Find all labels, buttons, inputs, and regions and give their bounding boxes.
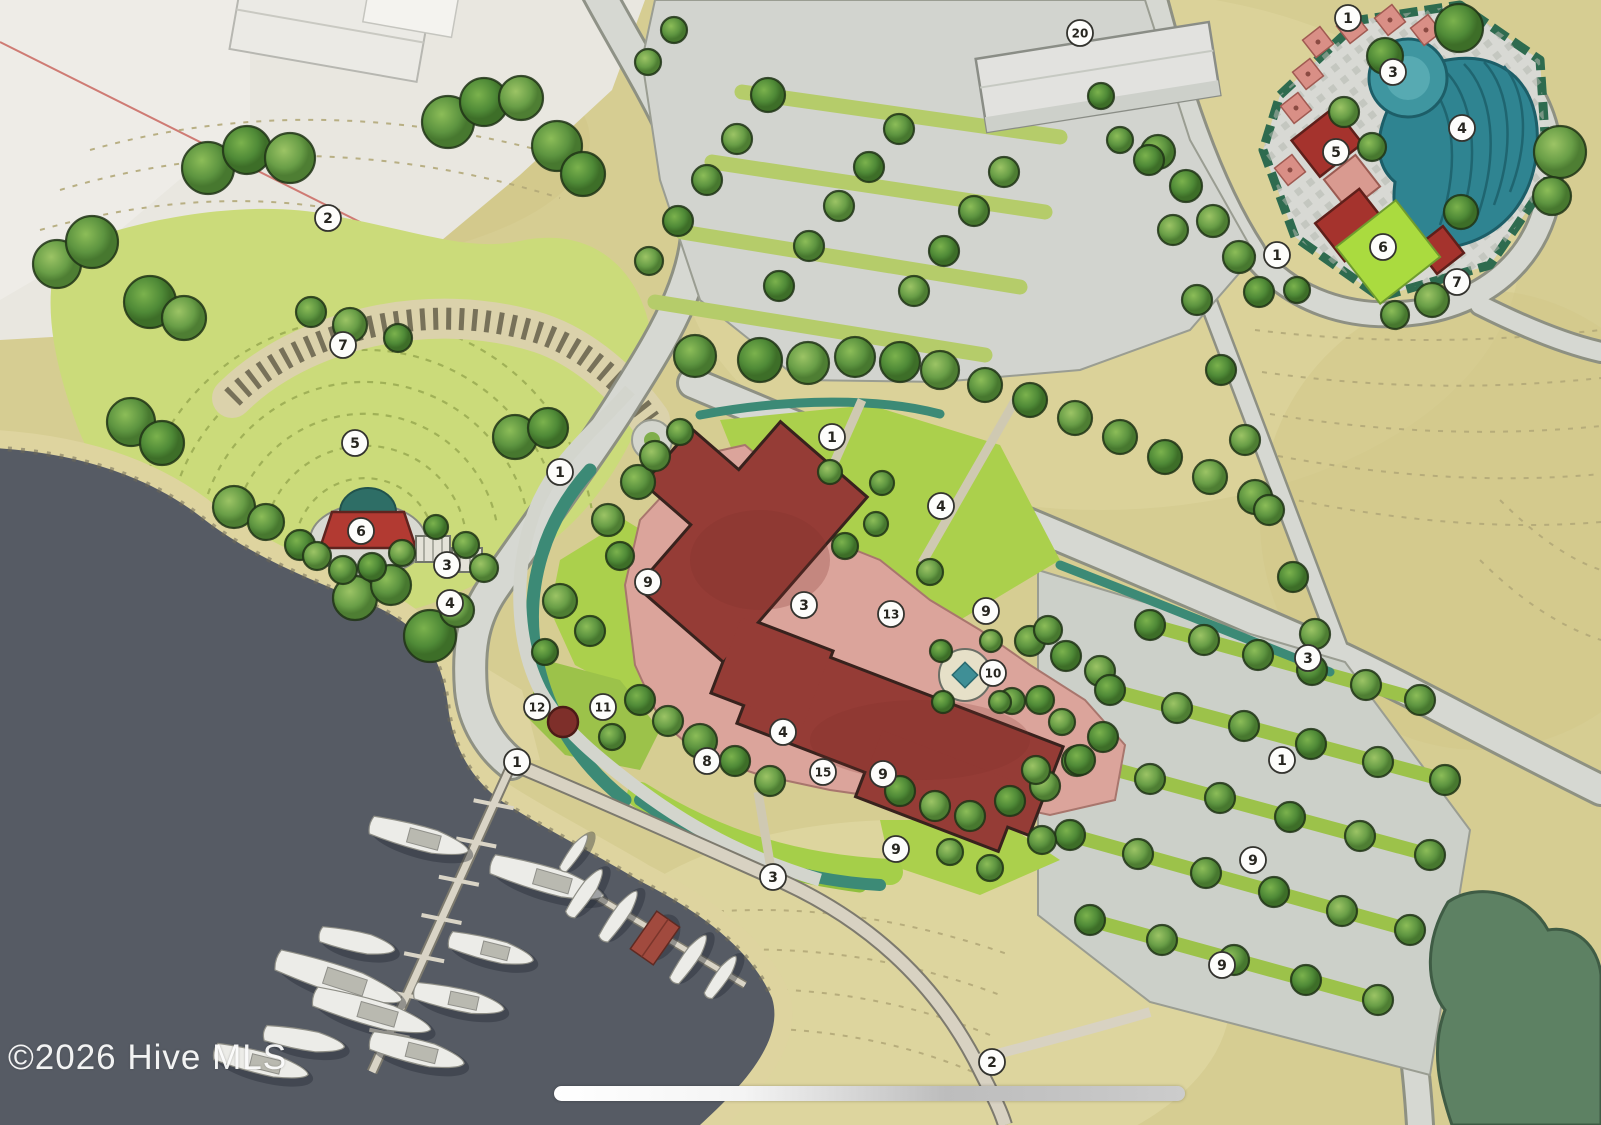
tree (561, 152, 605, 196)
tree (1103, 420, 1137, 454)
key-marker: 7 (330, 332, 356, 358)
tree (528, 408, 568, 448)
tree (599, 724, 625, 750)
tree (1329, 97, 1359, 127)
tree (1095, 675, 1125, 705)
tree (870, 471, 894, 495)
tree (722, 124, 752, 154)
tree (738, 338, 782, 382)
key-marker: 8 (694, 748, 720, 774)
svg-text:9: 9 (981, 604, 991, 620)
key-marker: 4 (770, 719, 796, 745)
key-marker: 1 (1335, 5, 1361, 31)
svg-text:13: 13 (883, 607, 900, 621)
tree (1358, 133, 1386, 161)
tree (955, 801, 985, 831)
tree (1065, 745, 1095, 775)
tree (1197, 205, 1229, 237)
svg-text:9: 9 (891, 842, 901, 858)
tree (1243, 640, 1273, 670)
svg-text:9: 9 (1248, 853, 1258, 869)
svg-text:5: 5 (1331, 145, 1341, 161)
key-marker: 9 (635, 569, 661, 595)
tree (854, 152, 884, 182)
key-marker: 9 (973, 598, 999, 624)
svg-text:1: 1 (1272, 248, 1282, 264)
tree (794, 231, 824, 261)
site-plan-drawing: 2756341201493139101211481599311345671319… (0, 0, 1601, 1125)
tree (1162, 693, 1192, 723)
tree (1284, 277, 1310, 303)
key-marker: 1 (1264, 242, 1290, 268)
tree (1205, 783, 1235, 813)
tree (1300, 619, 1330, 649)
key-marker: 5 (1323, 139, 1349, 165)
key-marker: 9 (1209, 952, 1235, 978)
tree (989, 691, 1011, 713)
tree (1381, 301, 1409, 329)
svg-text:2: 2 (987, 1055, 997, 1071)
tree (140, 421, 184, 465)
tree (1191, 858, 1221, 888)
tree (1351, 670, 1381, 700)
tree (1148, 440, 1182, 474)
tree (917, 559, 943, 585)
svg-text:20: 20 (1072, 26, 1089, 40)
tree (635, 49, 661, 75)
key-marker: 5 (342, 430, 368, 456)
key-marker: 4 (928, 493, 954, 519)
tree (921, 351, 959, 389)
tree (1170, 170, 1202, 202)
tree (1026, 686, 1054, 714)
tree (1182, 285, 1212, 315)
svg-text:7: 7 (338, 338, 348, 354)
tree (1444, 195, 1478, 229)
tree (1034, 616, 1062, 644)
key-marker: 3 (791, 592, 817, 618)
key-marker: 3 (760, 864, 786, 890)
tree (989, 157, 1019, 187)
tree (932, 691, 954, 713)
tree (606, 542, 634, 570)
tree (968, 368, 1002, 402)
tree (977, 855, 1003, 881)
tree (1395, 915, 1425, 945)
svg-text:4: 4 (778, 725, 788, 741)
site-plan-page: 2756341201493139101211481599311345671319… (0, 0, 1601, 1125)
tree (1363, 747, 1393, 777)
tree (1254, 495, 1284, 525)
tree (1230, 425, 1260, 455)
tree (1088, 83, 1114, 109)
tree (296, 297, 326, 327)
tree (1229, 711, 1259, 741)
tree (303, 542, 331, 570)
tree (1022, 756, 1050, 784)
key-marker: 6 (1370, 234, 1396, 260)
tree (1278, 562, 1308, 592)
tree (920, 791, 950, 821)
tree (835, 337, 875, 377)
tree (248, 504, 284, 540)
key-marker: 10 (980, 660, 1006, 686)
tree (532, 639, 558, 665)
svg-text:8: 8 (702, 754, 712, 770)
key-marker: 1 (1269, 747, 1295, 773)
tree (980, 630, 1002, 652)
key-marker: 9 (870, 761, 896, 787)
key-marker: 13 (878, 601, 904, 627)
tree (1223, 241, 1255, 273)
key-marker: 1 (504, 749, 530, 775)
tree (1259, 877, 1289, 907)
tree (1135, 764, 1165, 794)
scroll-indicator[interactable] (554, 1086, 1185, 1101)
tree (1134, 145, 1164, 175)
tree (1415, 283, 1449, 317)
key-marker: 9 (1240, 847, 1266, 873)
tree (1013, 383, 1047, 417)
tree (162, 296, 206, 340)
key-marker: 12 (524, 694, 550, 720)
tree (575, 616, 605, 646)
waterfront-gazebo (548, 707, 578, 737)
tree (1405, 685, 1435, 715)
tree (1075, 905, 1105, 935)
tree (499, 76, 543, 120)
key-marker: 3 (1295, 645, 1321, 671)
tree (1206, 355, 1236, 385)
svg-text:7: 7 (1452, 275, 1462, 291)
tree (1147, 925, 1177, 955)
svg-text:6: 6 (1378, 240, 1388, 256)
svg-text:1: 1 (555, 465, 565, 481)
tree (864, 512, 888, 536)
tree (1296, 729, 1326, 759)
tree (384, 324, 412, 352)
tree (787, 342, 829, 384)
svg-text:3: 3 (442, 558, 452, 574)
tree (1051, 641, 1081, 671)
svg-text:9: 9 (643, 575, 653, 591)
tree (1058, 401, 1092, 435)
tree (1275, 802, 1305, 832)
tree (640, 441, 670, 471)
key-marker: 3 (434, 552, 460, 578)
svg-text:1: 1 (827, 430, 837, 446)
svg-text:10: 10 (985, 666, 1002, 680)
svg-text:12: 12 (529, 700, 546, 714)
tree (1430, 765, 1460, 795)
tree (543, 584, 577, 618)
tree (265, 133, 315, 183)
tree (959, 196, 989, 226)
tree (592, 504, 624, 536)
svg-text:6: 6 (356, 524, 366, 540)
svg-text:9: 9 (1217, 958, 1227, 974)
tree (692, 165, 722, 195)
tree (1107, 127, 1133, 153)
svg-text:11: 11 (595, 700, 612, 714)
tree (1534, 126, 1586, 178)
svg-text:2: 2 (323, 211, 333, 227)
tree (1291, 965, 1321, 995)
tree (1028, 826, 1056, 854)
tree (223, 126, 271, 174)
key-marker: 3 (1380, 59, 1406, 85)
tree (1193, 460, 1227, 494)
tree (880, 342, 920, 382)
svg-text:15: 15 (815, 765, 832, 779)
tree (453, 532, 479, 558)
key-marker: 2 (979, 1049, 1005, 1075)
tree (899, 276, 929, 306)
tree (663, 206, 693, 236)
tree (1327, 896, 1357, 926)
svg-text:3: 3 (799, 598, 809, 614)
tree (764, 271, 794, 301)
key-marker: 11 (590, 694, 616, 720)
svg-text:4: 4 (1457, 121, 1467, 137)
tree (1435, 4, 1483, 52)
tree (824, 191, 854, 221)
tree (929, 236, 959, 266)
tree (389, 540, 415, 566)
tree (424, 515, 448, 539)
tree (720, 746, 750, 776)
tree (1363, 985, 1393, 1015)
key-marker: 4 (437, 590, 463, 616)
tree (635, 247, 663, 275)
tree (653, 706, 683, 736)
tree (1244, 277, 1274, 307)
tree (667, 419, 693, 445)
tree (674, 335, 716, 377)
svg-text:5: 5 (350, 436, 360, 452)
tree (661, 17, 687, 43)
key-marker: 2 (315, 205, 341, 231)
svg-text:3: 3 (1388, 65, 1398, 81)
key-marker: 9 (883, 836, 909, 862)
key-marker: 4 (1449, 115, 1475, 141)
tree (1088, 722, 1118, 752)
tree (1345, 821, 1375, 851)
svg-text:9: 9 (878, 767, 888, 783)
tree (884, 114, 914, 144)
key-marker: 1 (547, 459, 573, 485)
mls-watermark: ©2026 Hive MLS (8, 1038, 287, 1078)
tree (1158, 215, 1188, 245)
tree (818, 460, 842, 484)
svg-text:1: 1 (1277, 753, 1287, 769)
svg-text:3: 3 (768, 870, 778, 886)
key-marker: 6 (348, 518, 374, 544)
tree (832, 533, 858, 559)
tree (470, 554, 498, 582)
tree (995, 786, 1025, 816)
tree (1055, 820, 1085, 850)
tree (930, 640, 952, 662)
tree (1189, 625, 1219, 655)
north-parking-lot (642, 0, 1255, 382)
tree (1049, 709, 1075, 735)
tree (1533, 177, 1571, 215)
key-marker: 20 (1067, 20, 1093, 46)
key-marker: 1 (819, 424, 845, 450)
svg-text:4: 4 (445, 596, 455, 612)
key-marker: 7 (1444, 269, 1470, 295)
tree (625, 685, 655, 715)
svg-text:1: 1 (1343, 11, 1353, 27)
svg-text:4: 4 (936, 499, 946, 515)
tree (1135, 610, 1165, 640)
svg-text:1: 1 (512, 755, 522, 771)
tree (329, 556, 357, 584)
key-marker: 15 (810, 759, 836, 785)
tree (1123, 839, 1153, 869)
tree (755, 766, 785, 796)
tree (751, 78, 785, 112)
tree (358, 553, 386, 581)
tree (1415, 840, 1445, 870)
svg-text:3: 3 (1303, 651, 1313, 667)
tree (66, 216, 118, 268)
tree (937, 839, 963, 865)
